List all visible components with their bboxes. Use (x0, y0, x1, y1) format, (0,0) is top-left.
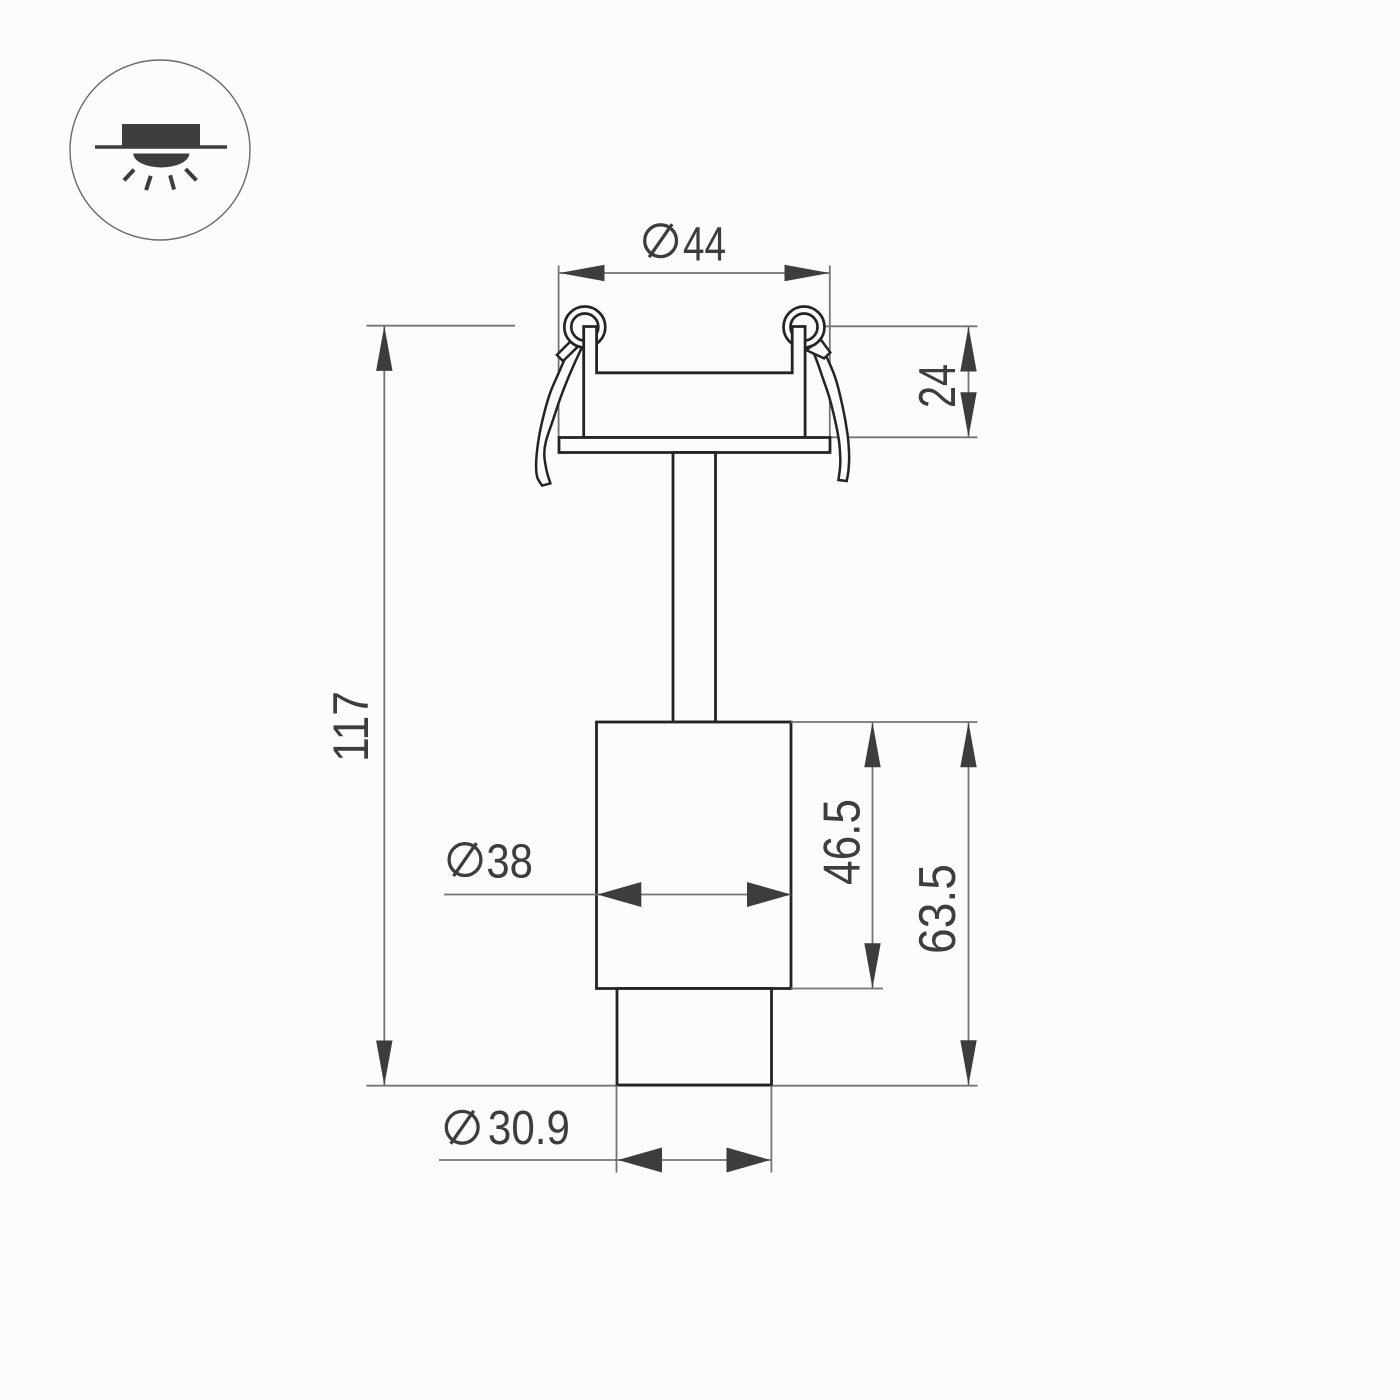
svg-text:63.5: 63.5 (909, 864, 967, 954)
svg-text:117: 117 (323, 691, 379, 762)
svg-text:46.5: 46.5 (814, 799, 872, 885)
svg-text:38: 38 (486, 836, 533, 889)
svg-text:44: 44 (683, 219, 726, 272)
svg-text:24: 24 (909, 364, 967, 408)
svg-text:30.9: 30.9 (488, 1102, 570, 1155)
